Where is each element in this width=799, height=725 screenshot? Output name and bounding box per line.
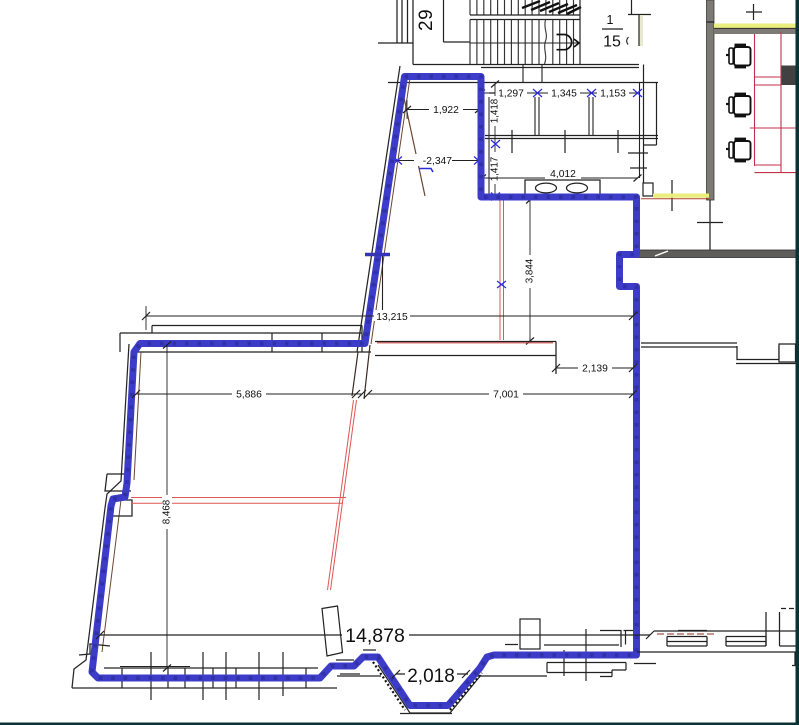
svg-text:1: 1 [607,13,614,27]
svg-text:2,018: 2,018 [407,666,455,687]
svg-text:-2,347: -2,347 [423,156,452,167]
svg-text:1,297: 1,297 [498,89,524,100]
svg-text:3,844: 3,844 [525,258,536,283]
svg-text:15: 15 [603,34,621,51]
svg-text:8,468: 8,468 [162,499,173,524]
svg-text:2,139: 2,139 [582,364,608,375]
svg-text:1,922: 1,922 [433,105,459,116]
svg-text:1,153: 1,153 [600,89,626,100]
svg-text:7,001: 7,001 [493,390,519,401]
svg-text:1,418: 1,418 [490,98,501,123]
svg-text:1,345: 1,345 [551,89,577,100]
svg-text:5,886: 5,886 [236,390,262,401]
svg-text:14,878: 14,878 [345,625,405,647]
svg-text:4,012: 4,012 [550,169,576,180]
svg-text:29: 29 [416,9,437,31]
svg-text:13,215: 13,215 [376,312,408,323]
